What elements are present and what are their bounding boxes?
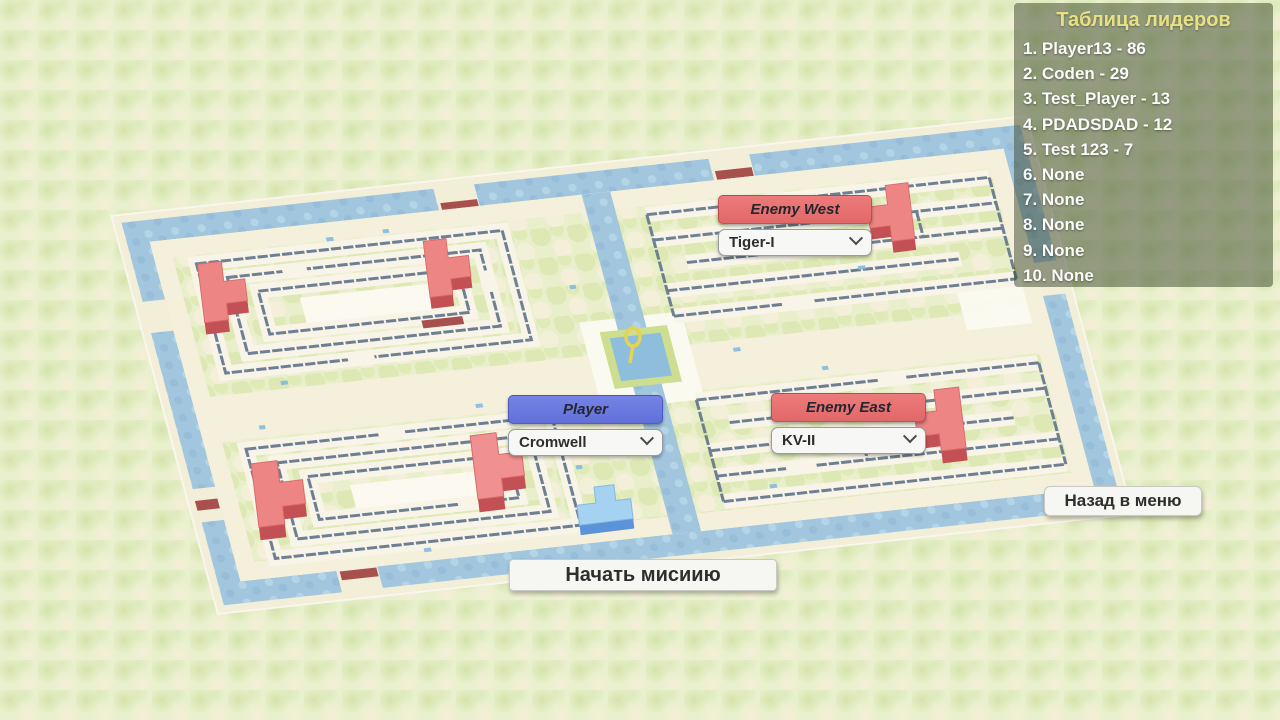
chevron-down-icon	[640, 431, 654, 445]
leaderboard-row: 5. Test 123 - 7	[1014, 137, 1273, 162]
leaderboard-row: 6. None	[1014, 162, 1273, 187]
leaderboard-row: 7. None	[1014, 187, 1273, 212]
player-tank-select[interactable]: Cromwell	[508, 429, 663, 456]
leaderboard-row: 8. None	[1014, 212, 1273, 237]
enemy-east-selected-value: KV-II	[782, 432, 815, 449]
leaderboard-row: 2. Coden - 29	[1014, 61, 1273, 86]
leaderboard-row: 3. Test_Player - 13	[1014, 86, 1273, 111]
enemy-west-tank-select[interactable]: Tiger-I	[718, 229, 872, 256]
enemy-west-label: Enemy West	[718, 195, 872, 224]
enemy-east-panel: Enemy East KV-II	[771, 393, 926, 454]
back-to-menu-button[interactable]: Назад в меню	[1044, 486, 1202, 516]
mission-setup-screen: Enemy West Tiger-I Player Cromwell Enemy…	[0, 0, 1280, 720]
enemy-east-tank-select[interactable]: KV-II	[771, 427, 926, 454]
leaderboard-row: 4. PDADSDAD - 12	[1014, 112, 1273, 137]
chevron-down-icon	[849, 231, 863, 245]
enemy-east-label: Enemy East	[771, 393, 926, 422]
leaderboard-title: Таблица лидеров	[1014, 9, 1273, 32]
player-label: Player	[508, 395, 663, 424]
player-panel: Player Cromwell	[508, 395, 663, 456]
leaderboard-row: 9. None	[1014, 238, 1273, 263]
enemy-west-panel: Enemy West Tiger-I	[718, 195, 872, 256]
start-mission-button[interactable]: Начать мисиию	[509, 559, 777, 591]
enemy-west-selected-value: Tiger-I	[729, 234, 775, 251]
player-selected-value: Cromwell	[519, 434, 587, 451]
leaderboard-row: 10. None	[1014, 263, 1273, 288]
leaderboard-row: 1. Player13 - 86	[1014, 36, 1273, 61]
chevron-down-icon	[903, 429, 917, 443]
leaderboard-panel: Таблица лидеров 1. Player13 - 86 2. Code…	[1014, 3, 1273, 287]
